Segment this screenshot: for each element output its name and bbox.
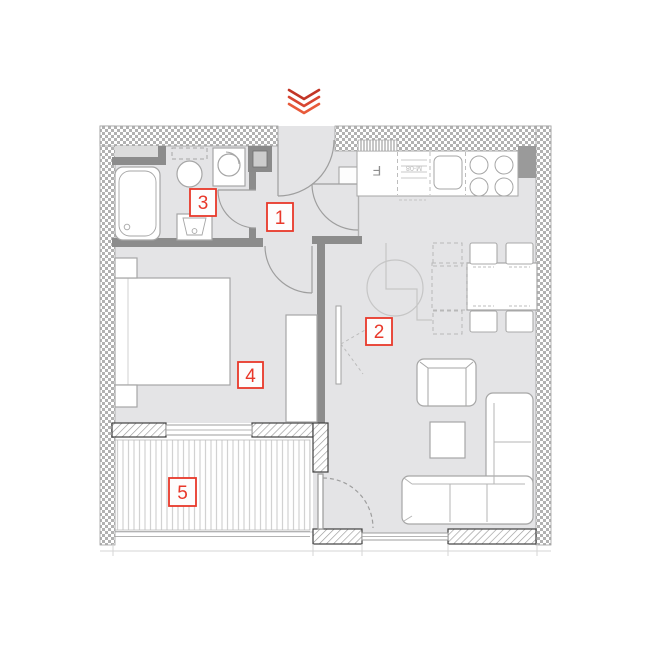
armchair [417, 359, 476, 406]
counter-text: M-08 [406, 164, 422, 171]
wardrobe [286, 315, 317, 422]
wall-left [100, 126, 115, 545]
room-label-4: 4 [238, 362, 263, 388]
room-number-2: 2 [374, 322, 385, 343]
nightstand [115, 258, 137, 278]
wall-corner-block [518, 146, 536, 178]
balcony-wall-piece [252, 423, 313, 437]
service-shaft [248, 146, 272, 172]
room-label-1: 1 [267, 203, 293, 231]
dining-table [467, 263, 537, 310]
room-label-5: 5 [169, 478, 196, 506]
floor-plan-page: F M-08 [0, 0, 650, 650]
fridge-label: F [373, 163, 382, 179]
wall-top-left [100, 126, 278, 146]
bathtub [115, 167, 160, 240]
balcony-side-wall [313, 423, 328, 472]
hall-living-wall [312, 236, 362, 244]
balcony-wall-piece [112, 423, 166, 437]
bed [115, 278, 230, 385]
bottom-wall-piece [313, 529, 362, 544]
nightstand [115, 385, 137, 407]
bedroom-living-wall [317, 244, 325, 423]
balcony [113, 440, 310, 537]
room-number-4: 4 [245, 366, 256, 387]
room-label-2: 2 [366, 318, 392, 345]
bathroom-sink [177, 214, 212, 240]
room-number-3: 3 [198, 193, 209, 214]
room-number-5: 5 [177, 483, 188, 504]
fridge-vent-grille [358, 140, 397, 151]
bathroom-niche [115, 146, 158, 157]
entrance-chevron-icon [289, 90, 319, 113]
dimension-lines [100, 544, 551, 556]
bottom-wall-piece [448, 529, 536, 544]
niche-wall [158, 146, 166, 159]
balcony-decking [115, 440, 310, 530]
washing-machine [213, 148, 245, 186]
kitchen-sink [434, 156, 462, 189]
niche-wall [112, 157, 166, 165]
floor-plan: F M-08 [0, 0, 650, 650]
room-number-1: 1 [275, 208, 286, 229]
bathroom-hall-wall [249, 172, 256, 190]
room-label-3: 3 [190, 189, 216, 216]
coffee-table [430, 422, 465, 458]
wall-right [536, 126, 551, 545]
